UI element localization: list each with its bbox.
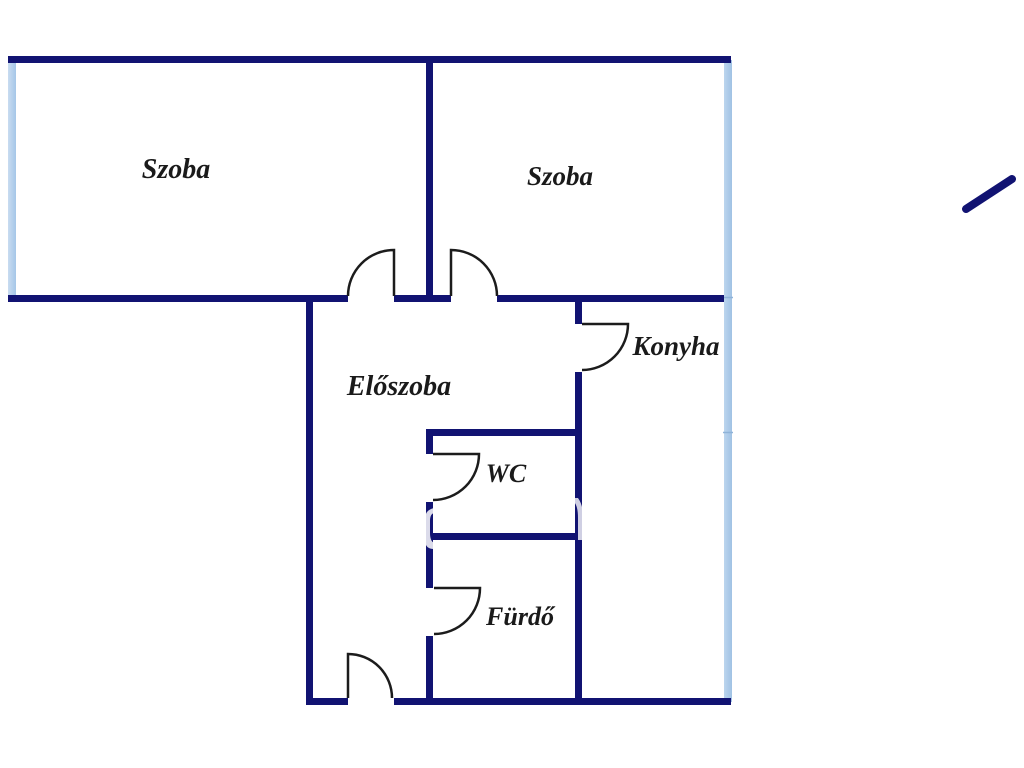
svg-text:Fürdő: Fürdő [485,602,556,631]
svg-text:Konyha: Konyha [631,331,719,361]
svg-text:Előszoba: Előszoba [346,371,451,402]
svg-text:Szoba: Szoba [142,154,210,185]
svg-text:Szoba: Szoba [527,161,593,191]
svg-text:WC: WC [486,459,527,488]
